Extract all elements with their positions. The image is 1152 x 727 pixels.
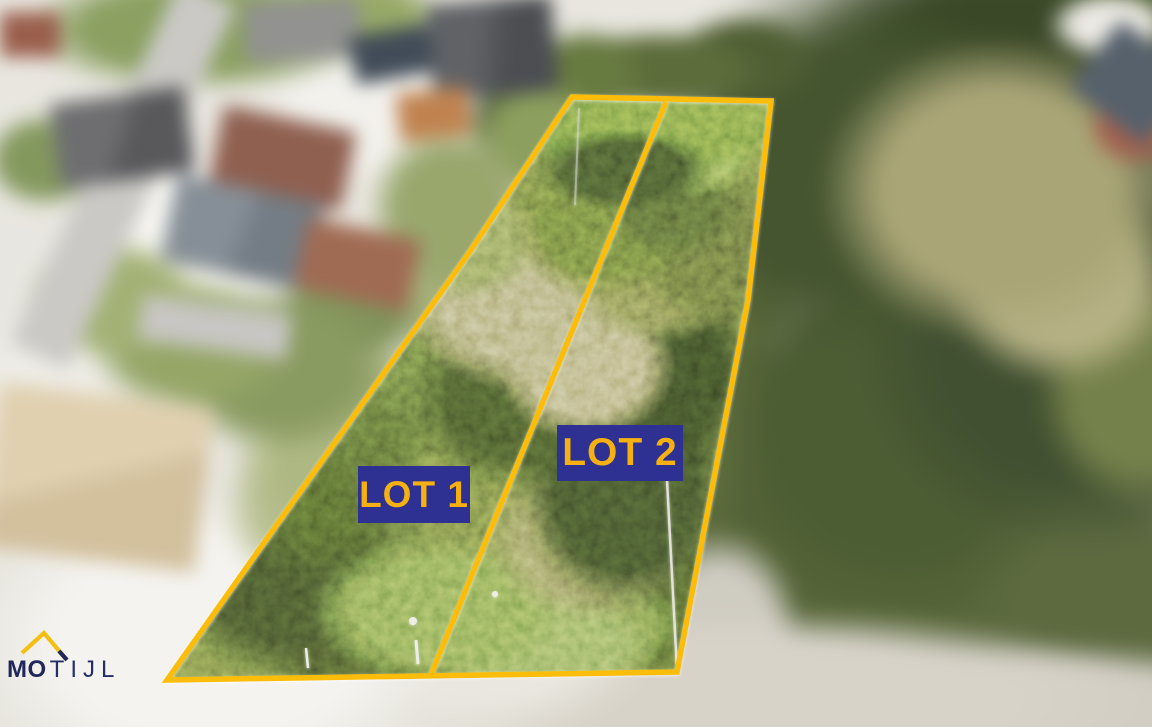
lot-boundary-polygon [167, 97, 771, 680]
logo-wordmark: MOTIJL [7, 657, 120, 682]
survey-marker [416, 640, 418, 664]
survey-marker [492, 591, 498, 597]
boundary-overlay [0, 0, 1152, 727]
lot-divider-line [430, 102, 666, 677]
survey-marker [306, 648, 308, 668]
motijl-logo: MOTIJL [0, 628, 150, 688]
lot1-label: LOT 1 [358, 466, 470, 523]
survey-marker [409, 617, 417, 625]
survey-pole [575, 108, 579, 205]
survey-line [667, 480, 677, 670]
logo-text-light: TIJL [50, 656, 121, 683]
lot2-label: LOT 2 [557, 425, 683, 481]
logo-text-bold: MO [7, 656, 47, 683]
aerial-photo: LOT 1 LOT 2 MOTIJL [0, 0, 1152, 727]
